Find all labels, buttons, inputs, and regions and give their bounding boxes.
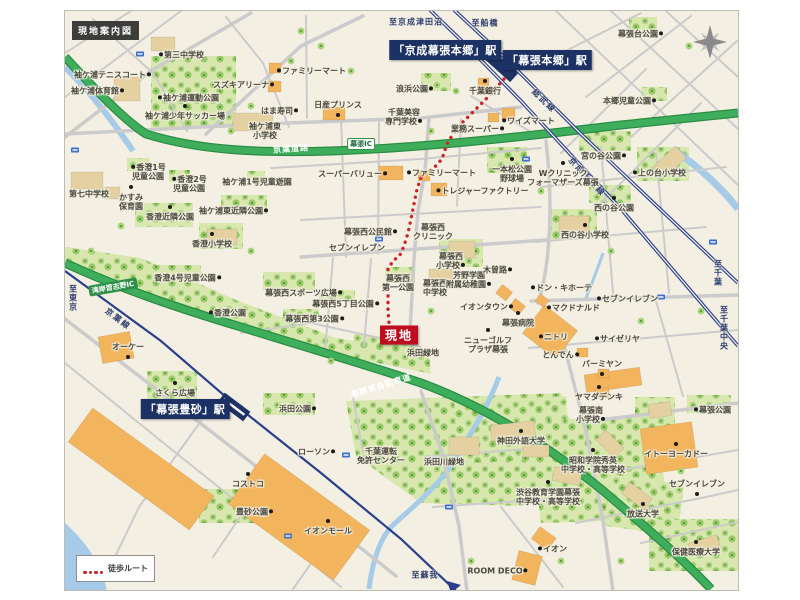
poi-label: ニトリ: [538, 332, 568, 341]
poi-marker: [524, 568, 528, 572]
poi-label: 木曽路: [483, 265, 513, 274]
poi-marker: [183, 104, 187, 108]
poi-label: 香澄4号児童公園: [154, 273, 222, 282]
direction-label: 至千葉中央: [719, 306, 730, 351]
poi-marker: [500, 126, 504, 130]
poi-marker: [172, 177, 176, 181]
poi-marker: [277, 68, 281, 72]
road-label: 湾岸習志野IC: [88, 277, 138, 296]
direction-label: 至蘇我: [412, 570, 439, 581]
poi-marker: [597, 296, 601, 300]
poi-label: バーミヤン: [582, 359, 622, 368]
poi-marker: [546, 480, 550, 484]
poi-label: 幕張南小学校: [576, 406, 606, 424]
poi-label: 幕張西公民館: [344, 227, 398, 236]
poi-label: 袖ケ浦東近隣公園: [199, 206, 269, 215]
poi-label: 西の谷小学校: [561, 230, 609, 239]
poi-marker: [270, 82, 274, 86]
poi-label: 日産プリンス: [314, 100, 362, 109]
poi-marker: [612, 196, 616, 200]
poi-label: イオンタウン: [460, 302, 514, 311]
poi-label: スーパーバリュー: [318, 169, 388, 178]
poi-label: 幕張西5丁目公園: [312, 299, 380, 308]
poi-label: かすみ保育園: [119, 193, 143, 211]
road-label: 京葉道路: [273, 142, 310, 155]
station-label: 「京成幕張本郷」駅: [389, 40, 501, 60]
poi-marker: [131, 165, 135, 169]
poi-marker: [294, 108, 298, 112]
poi-marker: [418, 119, 422, 123]
site-badge: 現地: [380, 326, 418, 345]
poi-label: コストコ: [232, 479, 264, 488]
poi-marker: [510, 157, 514, 161]
poi-marker: [591, 448, 595, 452]
poi-label: イオンモール: [304, 526, 352, 535]
poi-marker: [597, 385, 601, 389]
poi-label: 渋谷教育学園幕張中学校・高等学校: [516, 488, 580, 506]
poi-label: 幕張台公園: [618, 29, 664, 38]
poi-marker: [383, 171, 387, 175]
poi-marker: [633, 170, 637, 174]
poi-label: 香澄小学校: [192, 239, 232, 248]
poi-marker: [531, 285, 535, 289]
poi-label: 香澄公園: [208, 308, 246, 317]
poi-marker: [158, 95, 162, 99]
poi-label: 千葉銀行: [469, 86, 501, 95]
poi-label: ワイズマート: [501, 116, 555, 125]
poi-marker: [487, 282, 491, 286]
poi-marker: [695, 492, 699, 496]
poi-marker: [168, 205, 172, 209]
poi-marker: [561, 161, 565, 165]
road-label: 幕張IC: [347, 138, 375, 150]
poi-label: Wクリニックフォーマザーズ幕張: [527, 169, 599, 187]
poi-label: 幕張西小学校: [436, 252, 466, 270]
poi-marker: [575, 352, 579, 356]
poi-label: セブンイレブン: [596, 294, 658, 303]
poi-label: セブンイレブン: [329, 243, 385, 252]
poi-label: 第七中学校: [69, 189, 109, 198]
poi-label: 千葉美容専門学校: [385, 108, 423, 126]
poi-label: ファミリーマート: [406, 168, 476, 177]
poi-marker: [375, 301, 379, 305]
poi-label: 袖ケ浦1号児童遊園: [222, 177, 292, 186]
poi-label: マクドナルド: [546, 303, 600, 312]
poi-marker: [429, 86, 433, 90]
road-label: 東関東自動車道: [349, 372, 412, 401]
poi-marker: [436, 188, 440, 192]
poi-label: トレジャーファクトリー: [435, 186, 528, 195]
route-legend-label: 徒歩ルート: [108, 563, 148, 574]
railway-label: 総武線: [529, 87, 558, 116]
railway-label: 京葉線: [103, 306, 134, 333]
poi-label: 袖ケ浦運動公園: [157, 93, 219, 102]
poi-marker: [519, 429, 523, 433]
poi-marker: [129, 185, 133, 189]
poi-label: はま寿司: [261, 106, 299, 115]
poi-label: 幕張病院: [502, 318, 534, 327]
poi-label: とんでん: [542, 350, 580, 359]
poi-label: 宮の谷公園: [581, 151, 627, 160]
poi-label: 浪浜公園: [396, 84, 434, 93]
poi-label: ROOM DECO: [467, 566, 528, 575]
poi-label: ニューゴルフプラザ幕張: [464, 336, 512, 354]
poi-marker: [674, 442, 678, 446]
poi-label: 袖ケ浦テニスコート: [74, 70, 152, 79]
poi-marker: [120, 88, 124, 92]
poi-label: イトーヨーカドー: [644, 449, 708, 458]
poi-label: 昭和学院秀英中学校・高等学校: [561, 456, 625, 474]
poi-marker: [326, 519, 330, 523]
poi-marker: [126, 355, 130, 359]
poi-label: 保健医療大学: [672, 547, 720, 556]
poi-marker: [509, 304, 513, 308]
poi-label: イオン: [537, 544, 567, 553]
map-title: 現地案内図: [72, 21, 139, 40]
poi-marker: [246, 472, 250, 476]
poi-label: 浜田川緑地: [424, 457, 464, 466]
poi-marker: [264, 208, 268, 212]
poi-marker: [547, 305, 551, 309]
poi-label: 千葉運転免許センター: [357, 447, 405, 465]
poi-label: 浜田公園: [279, 404, 317, 413]
poi-marker: [338, 290, 342, 294]
screenshot-page: 現地 「京成幕張本郷」駅「幕張本郷」駅「幕張豊砂」駅至京成津田沼至船橋至東京至千…: [0, 0, 800, 600]
direction-label: 至千葉: [713, 260, 724, 287]
direction-label: 至東京: [68, 285, 79, 312]
poi-label: さくら広場: [155, 388, 195, 397]
poi-label: 豊砂公園: [236, 507, 274, 516]
poi-label: 幕張西クリニック: [413, 223, 453, 241]
site-guide-map: 現地 「京成幕張本郷」駅「幕張本郷」駅「幕張豊砂」駅至京成津田沼至船橋至東京至千…: [64, 10, 739, 591]
poi-marker: [539, 334, 543, 338]
poi-marker: [269, 509, 273, 513]
poi-label: スズキアリーナ: [213, 80, 275, 89]
poi-label: 幕張公園: [693, 405, 731, 414]
poi-label: 香澄2号児童公園: [171, 175, 207, 193]
poi-label: 業務スーパー: [451, 124, 505, 133]
poi-label: 本郷児童公園: [603, 96, 657, 105]
poi-marker: [483, 79, 487, 83]
poi-label: 神田外語大学: [497, 436, 545, 445]
poi-marker: [622, 153, 626, 157]
poi-label: セブンイレブン: [669, 479, 725, 488]
poi-marker: [595, 336, 599, 340]
poi-label: 香澄1号児童公園: [130, 163, 166, 181]
poi-marker: [312, 406, 316, 410]
labels-layer: 現地 「京成幕張本郷」駅「幕張本郷」駅「幕張豊砂」駅至京成津田沼至船橋至東京至千…: [65, 11, 738, 590]
poi-marker: [336, 113, 340, 117]
station-label: 「幕張豊砂」駅: [141, 399, 230, 419]
poi-marker: [210, 232, 214, 236]
poi-marker: [641, 502, 645, 506]
poi-label: 一本松公園野球場: [492, 165, 532, 183]
poi-label: 袖ケ浦東小学校: [249, 122, 281, 140]
poi-marker: [159, 52, 163, 56]
poi-marker: [217, 275, 221, 279]
poi-marker: [486, 328, 490, 332]
poi-label: 幕張西第一公園: [382, 274, 414, 292]
route-dots-icon: [83, 559, 105, 578]
poi-label: ファミリーマート: [276, 66, 346, 75]
poi-marker: [209, 310, 213, 314]
poi-label: 西の谷公園: [594, 203, 634, 212]
poi-label: 幕張西スポーツ広場: [265, 288, 343, 297]
poi-marker: [393, 229, 397, 233]
poi-marker: [173, 381, 177, 385]
poi-label: 袖ケ浦少年サッカー場: [145, 111, 225, 120]
poi-marker: [407, 170, 411, 174]
poi-label: 放送大学: [627, 509, 659, 518]
direction-label: 至京成津田沼: [389, 17, 443, 28]
poi-label: ローソン: [298, 447, 336, 456]
poi-marker: [583, 223, 587, 227]
poi-marker: [659, 31, 663, 35]
poi-label: オーケー: [112, 342, 144, 351]
poi-marker: [516, 311, 520, 315]
poi-label: 幕張西第3公園: [285, 314, 345, 323]
poi-label: 袖ケ浦体育館: [71, 86, 125, 95]
poi-label: 香澄近隣公園: [146, 212, 194, 221]
station-label: 「幕張本郷」駅: [503, 50, 592, 70]
poi-marker: [331, 449, 335, 453]
poi-marker: [508, 267, 512, 271]
poi-label: 第三中学校: [158, 50, 204, 59]
poi-marker: [600, 372, 604, 376]
poi-marker: [147, 72, 151, 76]
poi-marker: [694, 540, 698, 544]
direction-label: 至船橋: [472, 18, 499, 29]
poi-marker: [601, 417, 605, 421]
poi-label: ドン・キホーテ: [530, 283, 592, 292]
poi-label: 幕張西中学校: [423, 279, 447, 297]
poi-marker: [340, 316, 344, 320]
poi-label: サイゼリヤ: [594, 334, 640, 343]
poi-label: ヤマダデンキ: [575, 392, 623, 401]
poi-marker: [694, 407, 698, 411]
poi-label: 上の台小学校: [632, 168, 686, 177]
poi-label: 浜田緑地: [407, 348, 439, 357]
poi-marker: [502, 118, 506, 122]
route-legend: 徒歩ルート: [76, 555, 155, 582]
poi-marker: [652, 98, 656, 102]
poi-marker: [538, 546, 542, 550]
poi-marker: [461, 263, 465, 267]
